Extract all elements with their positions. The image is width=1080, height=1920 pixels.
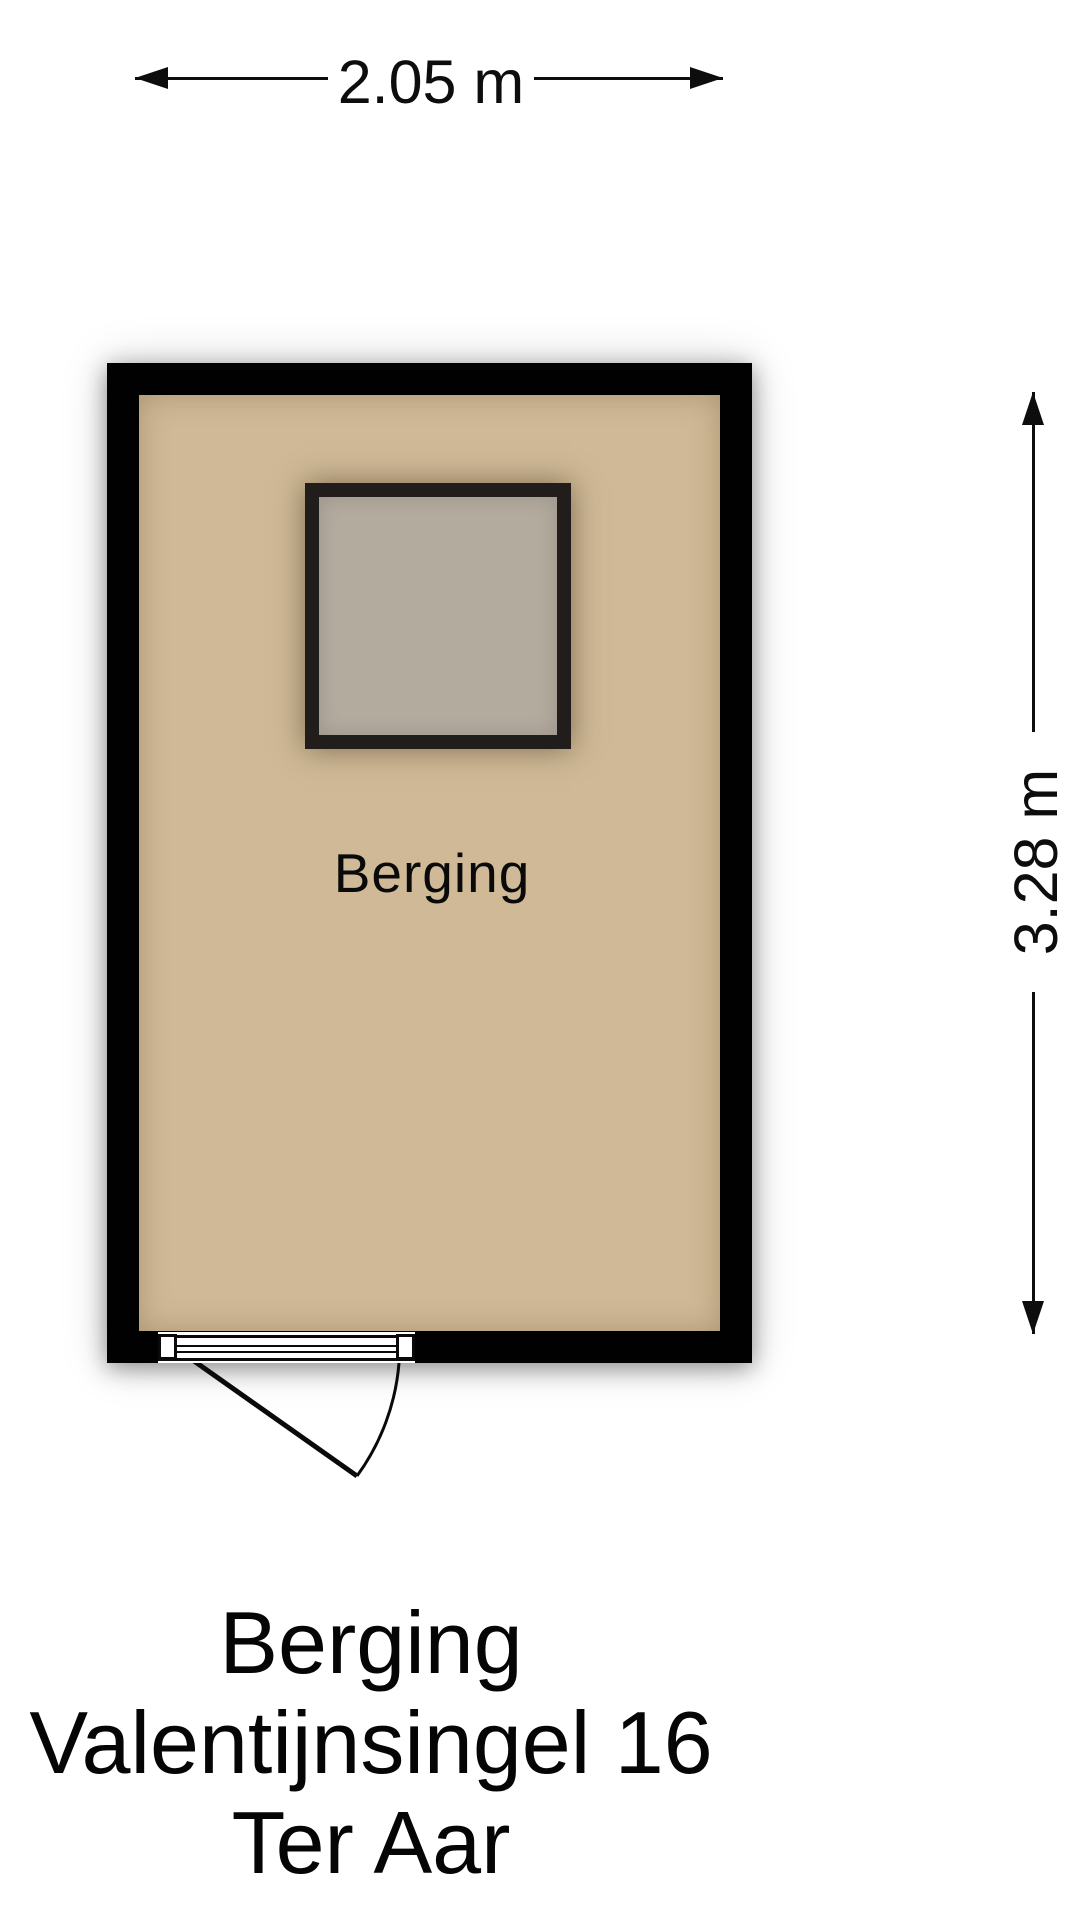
door-threshold-line (158, 1335, 415, 1338)
door-post-left (158, 1334, 177, 1360)
width-dimension-label: 2.05 m (328, 50, 534, 114)
door-post-right (396, 1334, 415, 1360)
door-opening (158, 1332, 415, 1363)
floorplan-page: 2.05 m 3.28 m Berging Berging Valentijns… (0, 0, 1080, 1920)
room-label: Berging (282, 839, 582, 907)
door-leaf-bottom-line (158, 1351, 415, 1353)
door-leaf-top-line (158, 1345, 415, 1347)
door-swing-arc (357, 1363, 399, 1476)
skylight-square (305, 483, 571, 749)
door-leaf-line (177, 1349, 357, 1476)
door-threshold-line (158, 1358, 415, 1361)
door-swing (0, 0, 1080, 1920)
height-dimension-label: 3.28 m (1005, 732, 1067, 992)
